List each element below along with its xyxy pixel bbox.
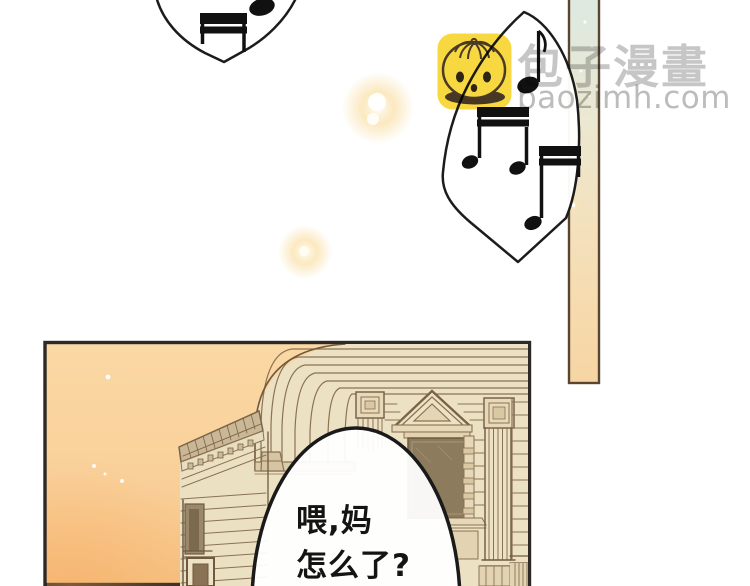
music-bubble-1 [156, 0, 297, 62]
comic-page: 喂,妈 怎么了? 包子漫畫 baozimh.com [0, 0, 750, 586]
baozi-bun-icon [438, 34, 512, 110]
comic-panel [0, 343, 531, 586]
speech-bubble-text: 喂,妈 怎么了? [296, 499, 411, 586]
speech-line-1: 喂,妈 [296, 499, 411, 544]
speech-line-2: 怎么了? [296, 544, 411, 586]
sparkle-glow [342, 72, 414, 144]
sparkle-glow [278, 225, 332, 279]
